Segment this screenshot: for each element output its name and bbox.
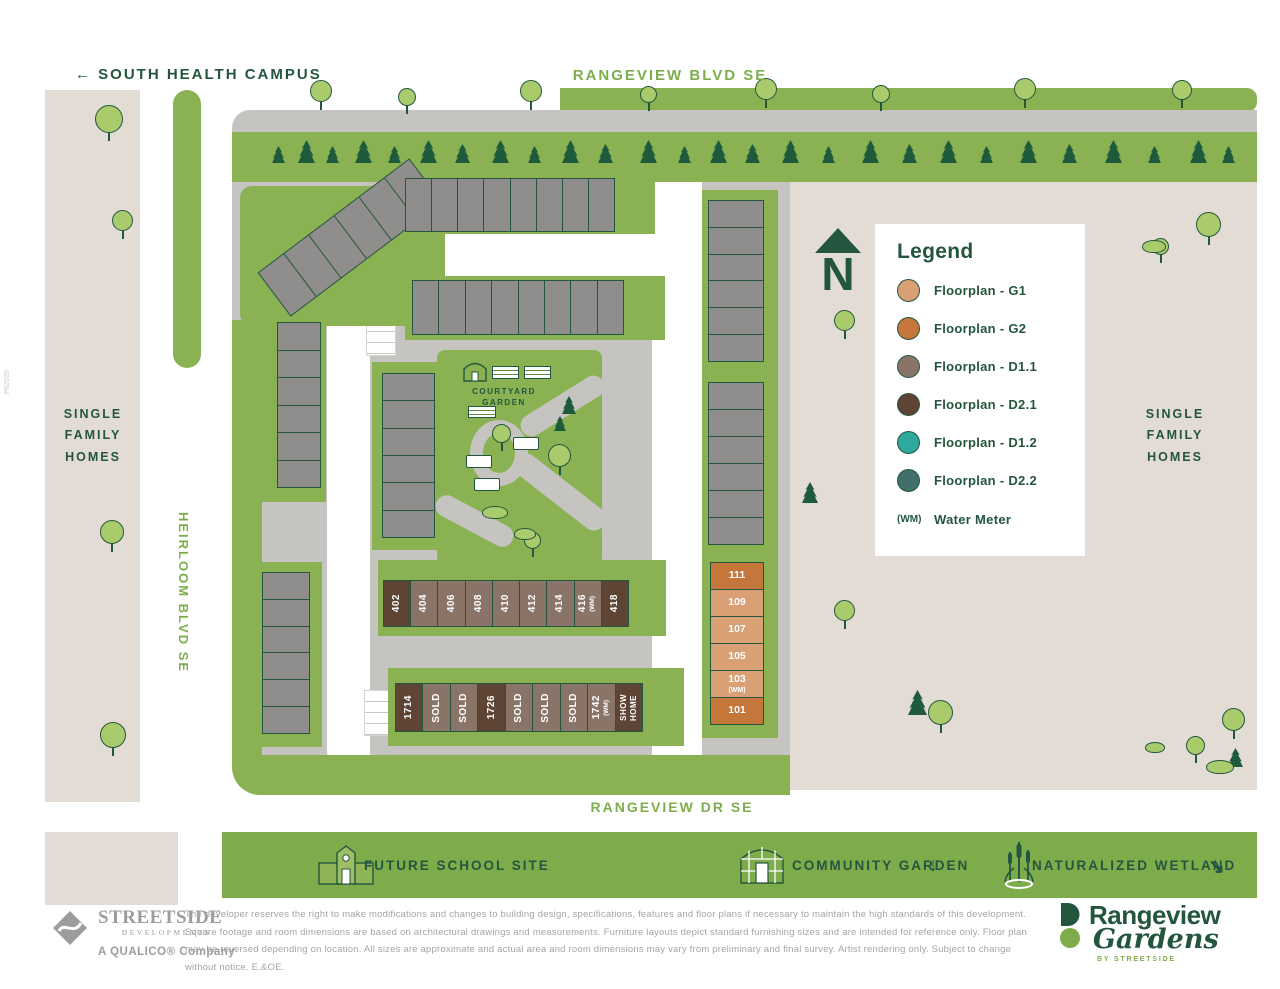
unit-row-1700: 1714 SOLD SOLD 1726 SOLD SOLD SOLD 1742(…	[395, 683, 643, 732]
unit-label: SOLD	[541, 693, 551, 723]
north-label: N	[812, 253, 864, 297]
bush-icon	[1142, 240, 1166, 253]
legend-item: Floorplan - D1.1	[897, 355, 1085, 378]
rangeview-mark-icon	[1058, 902, 1084, 950]
heirloom-blvd-label: HEIRLOOM BLVD SE	[176, 512, 191, 673]
unit-label: SOLD	[432, 693, 442, 723]
site-map-page: COURTYARDGARDEN 402 404 406 408 410 412 …	[0, 0, 1280, 989]
lawn-bottom-band	[232, 755, 790, 795]
unit-label: 107	[728, 624, 746, 636]
unit-label: 1742	[592, 695, 602, 719]
tree-icon	[834, 310, 855, 331]
unit: 101	[711, 698, 763, 724]
picnic-table	[474, 478, 500, 491]
garden-bed	[524, 366, 551, 379]
unit: 1714	[396, 684, 423, 731]
unit-label: 416	[578, 594, 588, 612]
unit: 107	[711, 617, 763, 644]
unit: 111	[711, 563, 763, 590]
unit: 1742(WM)	[588, 684, 615, 731]
unit-label: SOLD	[459, 693, 469, 723]
unit-label: 410	[501, 594, 511, 612]
legend-item: Floorplan - D1.2	[897, 431, 1085, 454]
legend-item: Floorplan - D2.2	[897, 469, 1085, 492]
rangeview-blvd-label: RANGEVIEW BLVD SE	[500, 67, 840, 84]
north-arrow-icon: N	[812, 228, 864, 297]
streetside-diamond-icon	[50, 908, 90, 948]
townhome-block-right-b	[708, 382, 764, 545]
legend-title: Legend	[897, 240, 1085, 264]
south-health-campus-label: ← SOUTH HEALTH CAMPUS	[75, 66, 322, 83]
unit-label: 412	[528, 594, 538, 612]
unit-label: SHOW	[620, 694, 628, 721]
floorplan-g2-swatch	[897, 317, 920, 340]
legend-water-meter: (WM)Water Meter	[897, 512, 1085, 527]
unit-label: 105	[728, 651, 746, 663]
single-family-homes-left-label: SINGLE FAMILY HOMES	[52, 404, 134, 468]
unit-label: 101	[728, 705, 746, 717]
unit: 402	[384, 581, 411, 626]
tree-icon	[100, 520, 124, 544]
unit: 404	[411, 581, 438, 626]
unit: 109	[711, 590, 763, 617]
tree-icon	[95, 105, 123, 133]
tree-icon	[928, 700, 953, 725]
unit-label: 111	[729, 570, 745, 582]
legend-label: Floorplan - D2.2	[934, 473, 1037, 488]
brand-script: Gardens	[1093, 928, 1220, 952]
rangeview-blvd-road	[232, 110, 1257, 134]
unit: 418	[602, 581, 628, 626]
unit: 105	[711, 644, 763, 671]
unit-label: 408	[474, 594, 484, 612]
unit: SOLD	[506, 684, 533, 731]
unit-column-100: 111 109 107 105 103(WM) 101	[710, 562, 764, 725]
unit-label: 109	[728, 597, 746, 609]
top-lawn-strip	[560, 88, 1257, 112]
legend-label: Water Meter	[934, 512, 1011, 527]
unit: 410	[493, 581, 520, 626]
tree-icon	[100, 722, 126, 748]
tree-icon	[1014, 78, 1036, 100]
show-home-unit: SHOWHOME	[616, 684, 642, 731]
future-school-site-label: FUTURE SCHOOL SITE	[364, 858, 550, 873]
unit-label: 1726	[487, 695, 497, 719]
tree-icon	[1222, 708, 1245, 731]
single-family-homes-right-label: SINGLE FAMILY HOMES	[1130, 404, 1220, 468]
rangeview-dr-label: RANGEVIEW DR SE	[547, 799, 797, 815]
tree-icon	[548, 444, 571, 467]
unit: 408	[466, 581, 493, 626]
unit: 412	[520, 581, 547, 626]
legend-item: Floorplan - G1	[897, 279, 1085, 302]
unit-row-400: 402 404 406 408 410 412 414 416(WM) 418	[383, 580, 629, 627]
bush-icon	[1206, 760, 1234, 774]
garden-bed	[492, 366, 519, 379]
tree-icon	[310, 80, 332, 102]
water-meter-tag: (WM)	[590, 596, 597, 612]
townhome-block-center	[382, 373, 435, 538]
townhome-block-left-1	[277, 322, 321, 488]
legend-label: Floorplan - G2	[934, 321, 1026, 336]
unit-label: 404	[419, 594, 429, 612]
bush-icon	[482, 506, 508, 519]
bush-icon	[1145, 742, 1165, 753]
tree-icon	[1172, 80, 1192, 100]
water-meter-symbol: (WM)	[897, 514, 920, 525]
lawn	[232, 320, 262, 760]
floorplan-d21-swatch	[897, 393, 920, 416]
community-garden-icon	[739, 846, 785, 884]
unit: SOLD	[533, 684, 560, 731]
tree-icon	[112, 210, 133, 231]
tree-icon	[1196, 212, 1221, 237]
tree-icon	[834, 600, 855, 621]
legend-label: Floorplan - G1	[934, 283, 1026, 298]
unit: 416(WM)	[575, 581, 602, 626]
bush-icon	[514, 528, 536, 540]
diagonal-arrow-icon: ↘	[1208, 854, 1225, 879]
tree-icon	[398, 88, 416, 106]
unit: SOLD	[561, 684, 588, 731]
floorplan-d11-swatch	[897, 355, 920, 378]
unit: 103(WM)	[711, 671, 763, 698]
heirloom-median	[173, 90, 201, 368]
unit-label: SOLD	[569, 693, 579, 723]
legend-item: Floorplan - D2.1	[897, 393, 1085, 416]
tree-icon	[640, 86, 657, 103]
courtyard-garden-label: COURTYARDGARDEN	[448, 386, 560, 408]
picnic-table	[466, 455, 492, 468]
tree-icon	[1186, 736, 1205, 755]
disclaimer-text: The developer reserves the right to make…	[185, 906, 1045, 976]
unit: 1726	[478, 684, 505, 731]
townhome-block-right-a	[708, 200, 764, 362]
unit: SOLD	[451, 684, 478, 731]
water-meter-tag: (WM)	[604, 700, 611, 716]
tree-icon	[492, 424, 511, 443]
unit-label: 402	[392, 594, 402, 612]
unit-label: 418	[610, 594, 620, 612]
legend-label: Floorplan - D1.2	[934, 435, 1037, 450]
revision-code: P62026	[4, 370, 11, 394]
water-meter-tag: (WM)	[728, 687, 745, 694]
townhome-block-top-row	[405, 178, 615, 232]
unit-label: 406	[447, 594, 457, 612]
unit: 406	[438, 581, 465, 626]
legend-panel: Legend Floorplan - G1 Floorplan - G2 Flo…	[875, 224, 1085, 556]
unit-label: HOME	[630, 695, 638, 721]
legend-item: Floorplan - G2	[897, 317, 1085, 340]
bottom-left-beige-block	[45, 832, 178, 905]
tree-icon	[872, 85, 890, 103]
community-garden-label: COMMUNITY GARDEN	[792, 858, 969, 873]
floorplan-d12-swatch	[897, 431, 920, 454]
legend-label: Floorplan - D2.1	[934, 397, 1037, 412]
greenhouse-icon	[462, 360, 488, 382]
floorplan-g1-swatch	[897, 279, 920, 302]
townhome-block-left-2	[262, 572, 310, 734]
floorplan-d22-swatch	[897, 469, 920, 492]
unit: 414	[547, 581, 574, 626]
unit-label: SOLD	[514, 693, 524, 723]
down-arrow-icon: ↓	[928, 854, 938, 877]
unit: SOLD	[423, 684, 450, 731]
unit-label: 1714	[404, 695, 414, 719]
wetland-icon	[1002, 838, 1036, 890]
picnic-table	[513, 437, 539, 450]
rangeview-gardens-logo: Rangeview Gardens BY STREETSIDE	[1058, 902, 1220, 963]
legend-label: Floorplan - D1.1	[934, 359, 1037, 374]
townhome-block-second-row	[412, 280, 624, 335]
amenities-banner: FUTURE SCHOOL SITE COMMUNITY GARDEN ↓ NA…	[222, 832, 1257, 898]
unit-label: 103	[728, 674, 746, 686]
brand-tagline: BY STREETSIDE	[1097, 956, 1220, 963]
naturalized-wetland-label: NATURALIZED WETLAND	[1032, 858, 1236, 873]
unit-label: 414	[555, 594, 565, 612]
